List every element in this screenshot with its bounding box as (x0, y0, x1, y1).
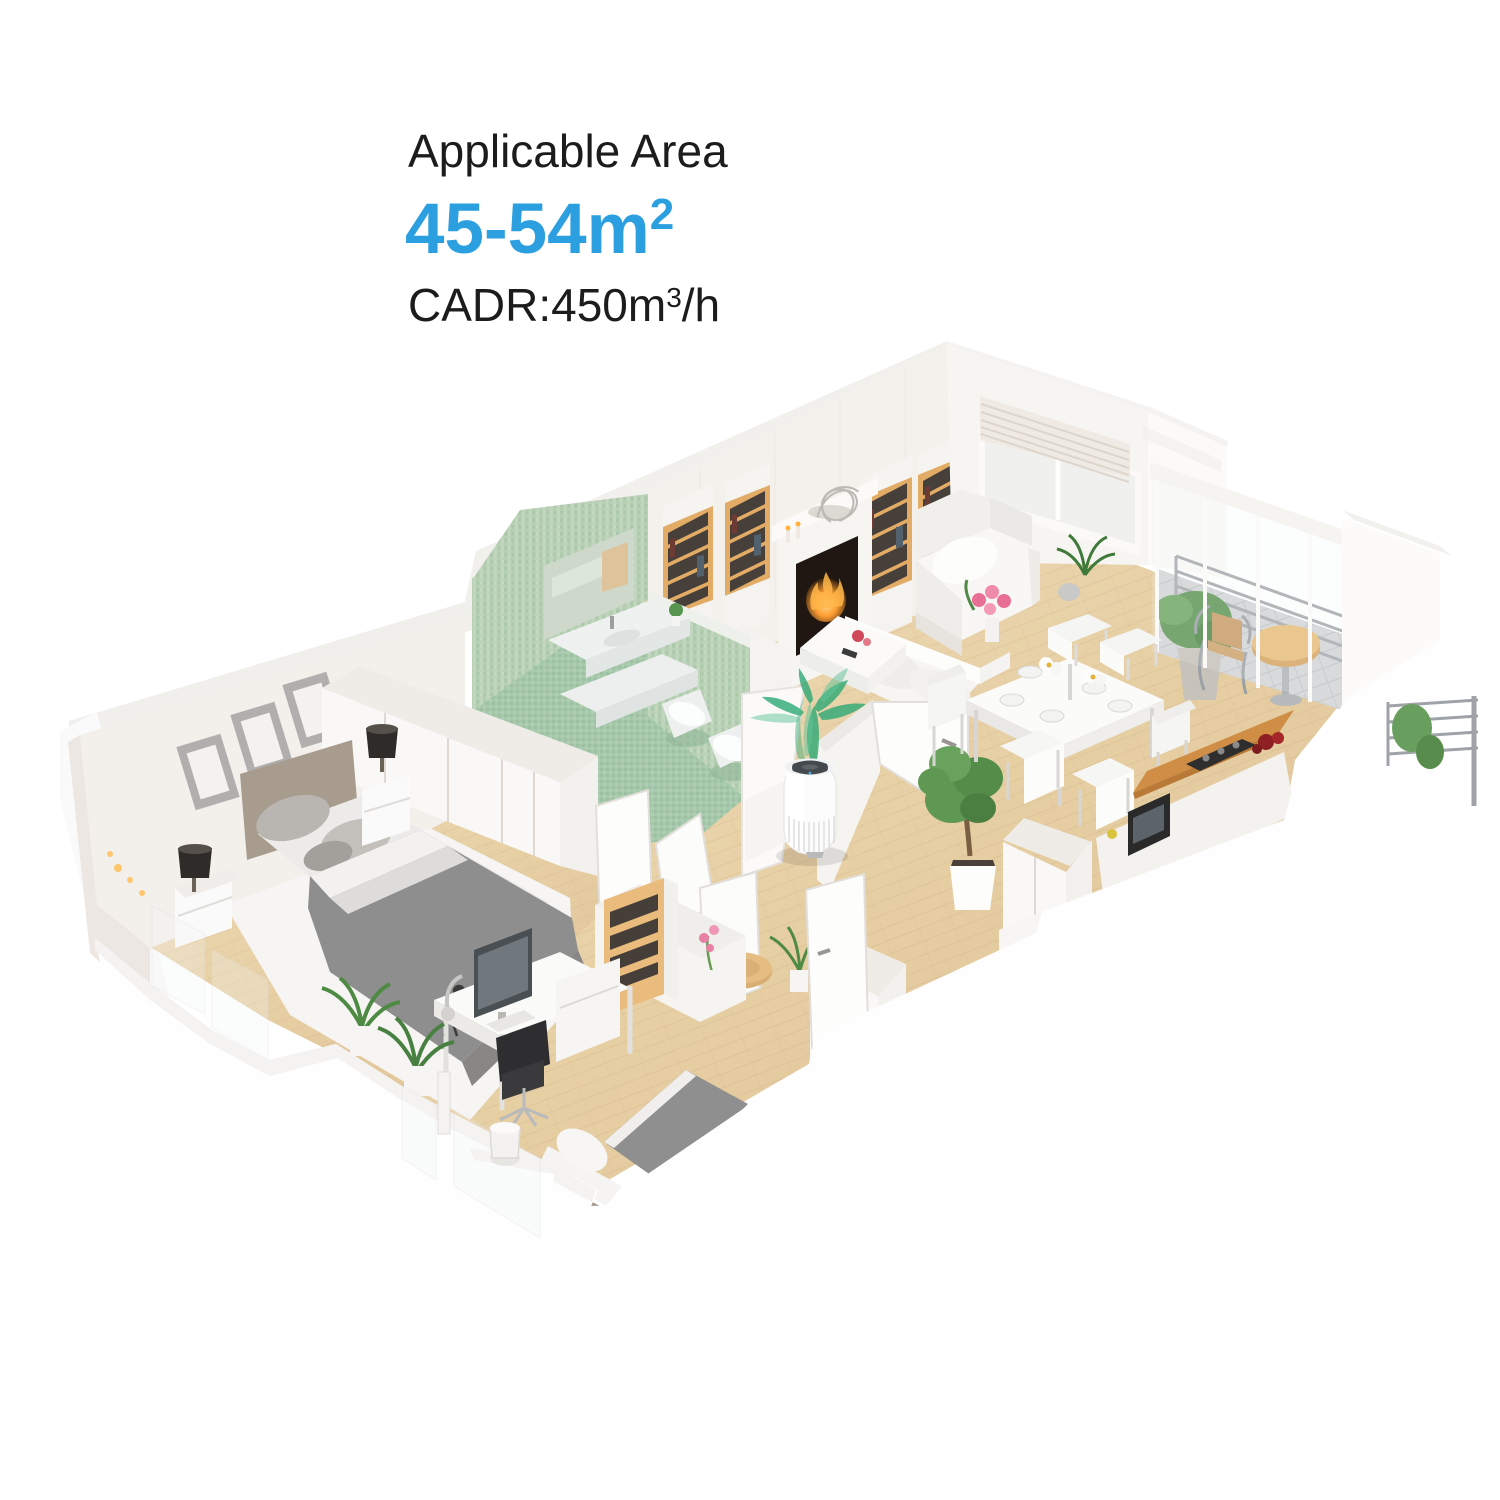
svg-text:Applicable Area: Applicable Area (408, 125, 728, 177)
svg-text:45-54m2: 45-54m2 (405, 190, 674, 269)
